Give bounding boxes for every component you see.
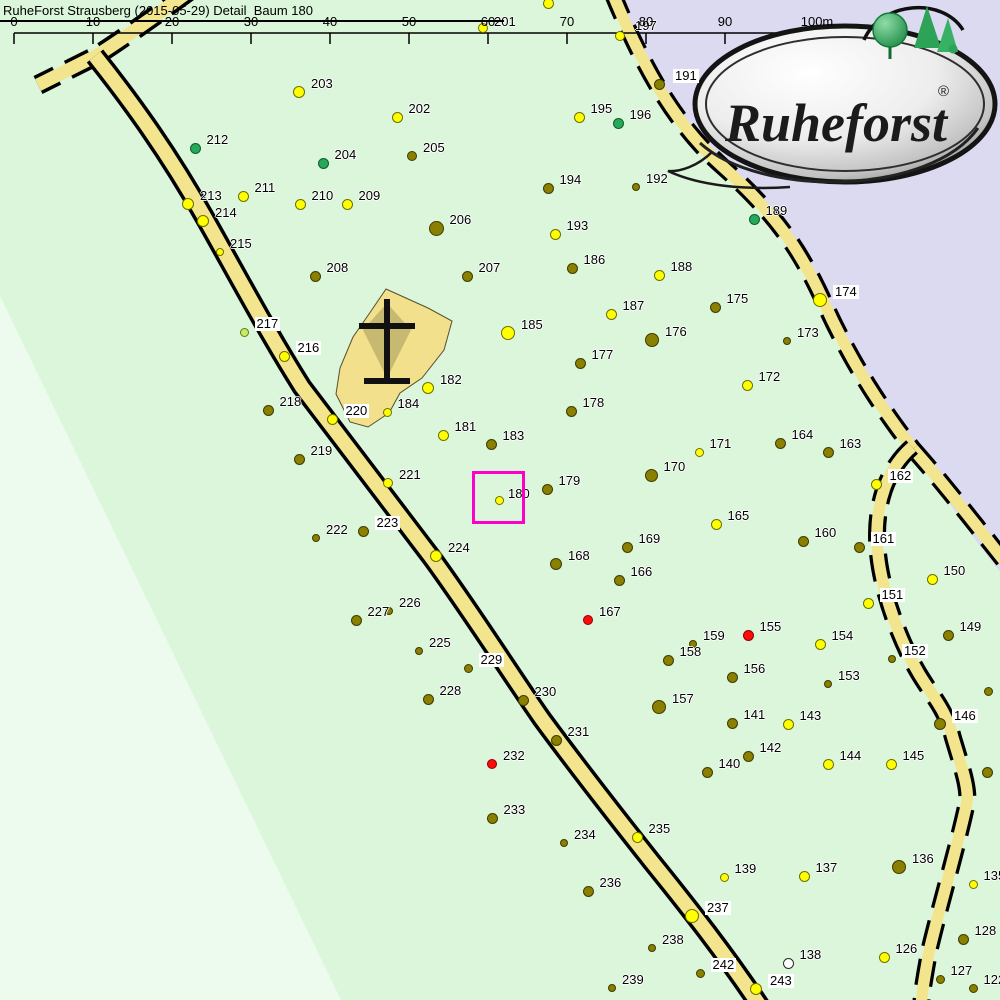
tree-label-210: 210 xyxy=(312,189,334,203)
tree-label-137: 137 xyxy=(816,861,838,875)
tree-label-160: 160 xyxy=(815,526,837,540)
tree-label-193: 193 xyxy=(567,219,589,233)
tree-dot-179 xyxy=(542,484,553,495)
tree-label-170: 170 xyxy=(664,460,686,474)
logo-wordmark: Ruheforst xyxy=(724,93,949,153)
tree-label-176: 176 xyxy=(665,325,687,339)
scalebar-label-50: 50 xyxy=(402,14,416,29)
tree-dot-216 xyxy=(279,351,290,362)
tree-label-156: 156 xyxy=(744,662,766,676)
tree-label-181: 181 xyxy=(455,420,477,434)
tree-label-211: 211 xyxy=(255,181,276,195)
tree-dot-146 xyxy=(934,718,946,730)
tree-dot-175 xyxy=(710,302,721,313)
tree-label-229: 229 xyxy=(479,653,505,667)
tree-dot-209 xyxy=(342,199,353,210)
tree-dot-224 xyxy=(430,550,442,562)
tree-dot-137 xyxy=(799,871,810,882)
tree-dot-155 xyxy=(743,630,754,641)
tree-dot-161 xyxy=(854,542,865,553)
tree-label-242: 242 xyxy=(711,958,737,972)
tree-dot-163 xyxy=(823,447,834,458)
tree-dot-176 xyxy=(645,333,659,347)
tree-label-224: 224 xyxy=(448,541,470,555)
tree-label-206: 206 xyxy=(450,213,472,227)
tree-dot-239 xyxy=(608,984,616,992)
tree-dot-140 xyxy=(702,767,713,778)
tree-dot-221 xyxy=(383,478,393,488)
scalebar-label-10: 10 xyxy=(86,14,100,29)
tree-label-234: 234 xyxy=(574,828,596,842)
tree-label-185: 185 xyxy=(521,318,543,332)
tree-label-212: 212 xyxy=(207,133,229,147)
tree-dot-218 xyxy=(263,405,274,416)
tree-dot-149 xyxy=(943,630,954,641)
tree-dot-237 xyxy=(685,909,699,923)
tree-label-205: 205 xyxy=(423,141,445,155)
tree-label-167: 167 xyxy=(599,605,621,619)
tree-label-207: 207 xyxy=(479,261,501,275)
tree-label-164: 164 xyxy=(792,428,814,442)
tree-dot-207 xyxy=(462,271,473,282)
tree-dot-238 xyxy=(648,944,656,952)
tree-dot-193 xyxy=(550,229,561,240)
tree-label-218: 218 xyxy=(280,395,302,409)
tree-label-144: 144 xyxy=(840,749,862,763)
tree-label-194: 194 xyxy=(560,173,582,187)
tree-label-195: 195 xyxy=(591,102,613,116)
tree-dot-151 xyxy=(863,598,874,609)
tree-dot-220 xyxy=(327,414,338,425)
tree-label-139: 139 xyxy=(735,862,757,876)
tree-dot-223 xyxy=(358,526,369,537)
tree-dot-182 xyxy=(422,382,434,394)
tree-dot-162 xyxy=(871,479,882,490)
tree-label-203: 203 xyxy=(311,77,333,91)
tree-dot-164 xyxy=(775,438,786,449)
tree-label-189: 189 xyxy=(766,204,788,218)
tree-dot-122 xyxy=(969,984,978,993)
tree-dot-126 xyxy=(879,952,890,963)
tree-dot-172 xyxy=(742,380,753,391)
tree-label-223: 223 xyxy=(375,516,401,530)
scalebar-label-70: 70 xyxy=(560,14,574,29)
tree-dot-219 xyxy=(294,454,305,465)
tree-label-127: 127 xyxy=(951,964,973,978)
tree-label-153: 153 xyxy=(838,669,860,683)
tree-dot-157 xyxy=(652,700,666,714)
tree-dot-unlabeled xyxy=(984,687,993,696)
tree-dot-138 xyxy=(783,958,794,969)
tree-dot-153 xyxy=(824,680,832,688)
tree-label-213: 213 xyxy=(200,189,222,203)
tree-label-177: 177 xyxy=(592,348,614,362)
tree-dot-185 xyxy=(501,326,515,340)
tree-label-168: 168 xyxy=(568,549,590,563)
highlight-box-tree-180 xyxy=(472,471,525,524)
tree-dot-230 xyxy=(518,695,529,706)
tree-dot-233 xyxy=(487,813,498,824)
scalebar-label-30: 30 xyxy=(244,14,258,29)
tree-dot-156 xyxy=(727,672,738,683)
tree-dot-139 xyxy=(720,873,729,882)
tree-dot-232 xyxy=(487,759,497,769)
tree-label-165: 165 xyxy=(728,509,750,523)
tree-label-221: 221 xyxy=(399,468,421,482)
tree-label-122: 122 xyxy=(984,973,1000,987)
tree-dot-181 xyxy=(438,430,449,441)
tree-dot-166 xyxy=(614,575,625,586)
tree-label-174: 174 xyxy=(833,285,859,299)
tree-dot-197 xyxy=(615,31,625,41)
tree-dot-208 xyxy=(310,271,321,282)
tree-label-231: 231 xyxy=(568,725,590,739)
tree-label-198: 198 xyxy=(558,0,580,1)
tree-label-216: 216 xyxy=(296,341,322,355)
tree-label-191: 191 xyxy=(673,69,699,83)
tree-label-230: 230 xyxy=(535,685,557,699)
tree-label-219: 219 xyxy=(311,444,333,458)
scalebar-label-40: 40 xyxy=(323,14,337,29)
tree-label-178: 178 xyxy=(583,396,605,410)
tree-dot-165 xyxy=(711,519,722,530)
tree-dot-231 xyxy=(551,735,562,746)
tree-label-126: 126 xyxy=(896,942,918,956)
tree-dot-195 xyxy=(574,112,585,123)
tree-label-128: 128 xyxy=(975,924,997,938)
tree-label-159: 159 xyxy=(703,629,725,643)
tree-label-226: 226 xyxy=(399,596,421,610)
tree-dot-169 xyxy=(622,542,633,553)
tree-dot-235 xyxy=(632,832,643,843)
tree-dot-152 xyxy=(888,655,896,663)
tree-dot-127 xyxy=(936,975,945,984)
tree-label-142: 142 xyxy=(760,741,782,755)
tree-label-233: 233 xyxy=(504,803,526,817)
tree-label-239: 239 xyxy=(622,973,644,987)
tree-label-146: 146 xyxy=(952,709,978,723)
tree-dot-214 xyxy=(197,215,209,227)
tree-dot-227 xyxy=(351,615,362,626)
tree-label-150: 150 xyxy=(944,564,966,578)
tree-label-202: 202 xyxy=(409,102,431,116)
tree-dot-168 xyxy=(550,558,562,570)
tree-dot-145 xyxy=(886,759,897,770)
tree-label-217: 217 xyxy=(255,317,281,331)
tree-dot-242 xyxy=(696,969,705,978)
tree-dot-191 xyxy=(654,79,665,90)
tree-dot-141 xyxy=(727,718,738,729)
map-title: RuheForst Strausberg (2015-05-29) Detail… xyxy=(3,3,313,18)
tree-dot-229 xyxy=(464,664,473,673)
tree-label-152: 152 xyxy=(902,644,928,658)
tree-dot-234 xyxy=(560,839,568,847)
tree-label-227: 227 xyxy=(368,605,390,619)
tree-dot-187 xyxy=(606,309,617,320)
tree-dot-215 xyxy=(216,248,224,256)
tree-label-175: 175 xyxy=(727,292,749,306)
tree-dot-212 xyxy=(190,143,201,154)
tree-label-140: 140 xyxy=(719,757,741,771)
tree-dot-143 xyxy=(783,719,794,730)
tree-label-157: 157 xyxy=(672,692,694,706)
tree-label-158: 158 xyxy=(680,645,702,659)
tree-dot-228 xyxy=(423,694,434,705)
tree-dot-188 xyxy=(654,270,665,281)
tree-label-215: 215 xyxy=(230,237,252,251)
tree-label-171: 171 xyxy=(710,437,732,451)
tree-dot-189 xyxy=(749,214,760,225)
tree-label-208: 208 xyxy=(327,261,349,275)
tree-dot-170 xyxy=(645,469,658,482)
tree-label-149: 149 xyxy=(960,620,982,634)
tree-dot-128 xyxy=(958,934,969,945)
tree-dot-144 xyxy=(823,759,834,770)
tree-dot-167 xyxy=(583,615,593,625)
tree-label-163: 163 xyxy=(840,437,862,451)
tree-dot-203 xyxy=(293,86,305,98)
tree-label-214: 214 xyxy=(215,206,237,220)
scalebar-label-100m: 100m xyxy=(801,14,834,29)
tree-label-184: 184 xyxy=(398,397,420,411)
tree-dot-211 xyxy=(238,191,249,202)
tree-dot-154 xyxy=(815,639,826,650)
tree-label-188: 188 xyxy=(671,260,693,274)
tree-label-173: 173 xyxy=(797,326,819,340)
tree-label-192: 192 xyxy=(646,172,668,186)
tree-label-151: 151 xyxy=(880,588,906,602)
map-canvas: Ruheforst ® RuheForst Strausberg (2015-0… xyxy=(0,0,1000,1000)
tree-dot-225 xyxy=(415,647,423,655)
scalebar-label-90: 90 xyxy=(718,14,732,29)
tree-label-187: 187 xyxy=(623,299,645,313)
tree-label-238: 238 xyxy=(662,933,684,947)
tree-dot-202 xyxy=(392,112,403,123)
scalebar-label-0: 0 xyxy=(10,14,17,29)
scalebar-label-80: 80 xyxy=(639,14,653,29)
tree-dot-171 xyxy=(695,448,704,457)
tree-dot-150 xyxy=(927,574,938,585)
tree-label-155: 155 xyxy=(760,620,782,634)
tree-label-135: 135 xyxy=(984,869,1000,883)
tree-dot-213 xyxy=(182,198,194,210)
tree-label-235: 235 xyxy=(649,822,671,836)
tree-label-225: 225 xyxy=(429,636,451,650)
tree-dot-177 xyxy=(575,358,586,369)
tree-label-182: 182 xyxy=(440,373,462,387)
tree-dot-204 xyxy=(318,158,329,169)
tree-label-204: 204 xyxy=(335,148,357,162)
tree-label-162: 162 xyxy=(888,469,914,483)
tree-dot-243 xyxy=(750,983,762,995)
tree-label-243: 243 xyxy=(768,974,794,988)
tree-label-145: 145 xyxy=(903,749,925,763)
registered-mark: ® xyxy=(938,83,949,100)
tree-dot-217 xyxy=(240,328,249,337)
tree-dot-205 xyxy=(407,151,417,161)
tree-dot-184 xyxy=(383,408,392,417)
tree-dot-183 xyxy=(486,439,497,450)
tree-label-237: 237 xyxy=(705,901,731,915)
tree-dot-222 xyxy=(312,534,320,542)
tree-label-169: 169 xyxy=(639,532,661,546)
tree-dot-196 xyxy=(613,118,624,129)
tree-dot-192 xyxy=(632,183,640,191)
tree-dot-173 xyxy=(783,337,791,345)
tree-dot-136 xyxy=(892,860,906,874)
tree-dot-206 xyxy=(429,221,444,236)
tree-dot-174 xyxy=(813,293,827,307)
tree-label-154: 154 xyxy=(832,629,854,643)
tree-label-143: 143 xyxy=(800,709,822,723)
tree-dot-160 xyxy=(798,536,809,547)
tree-label-236: 236 xyxy=(600,876,622,890)
tree-label-141: 141 xyxy=(744,708,766,722)
tree-label-186: 186 xyxy=(584,253,606,267)
tree-label-136: 136 xyxy=(912,852,934,866)
tree-label-201: 201 xyxy=(494,15,516,29)
tree-dot-186 xyxy=(567,263,578,274)
tree-label-222: 222 xyxy=(326,523,348,537)
tree-label-220: 220 xyxy=(344,404,370,418)
scalebar-label-60: 60 xyxy=(481,14,495,29)
tree-label-228: 228 xyxy=(440,684,462,698)
tree-dot-198 xyxy=(543,0,554,9)
tree-label-166: 166 xyxy=(631,565,653,579)
tree-dot-135 xyxy=(969,880,978,889)
tree-dot-236 xyxy=(583,886,594,897)
tree-label-138: 138 xyxy=(800,948,822,962)
tree-label-183: 183 xyxy=(503,429,525,443)
tree-dot-158 xyxy=(663,655,674,666)
tree-label-196: 196 xyxy=(630,108,652,122)
tree-label-172: 172 xyxy=(759,370,781,384)
tree-dot-142 xyxy=(743,751,754,762)
tree-dot-178 xyxy=(566,406,577,417)
tree-dot-210 xyxy=(295,199,306,210)
scalebar-label-20: 20 xyxy=(165,14,179,29)
tree-dot-unlabeled xyxy=(982,767,993,778)
tree-label-179: 179 xyxy=(559,474,581,488)
tree-label-232: 232 xyxy=(503,749,525,763)
tree-label-209: 209 xyxy=(359,189,381,203)
tree-dot-194 xyxy=(543,183,554,194)
tree-label-161: 161 xyxy=(871,532,897,546)
